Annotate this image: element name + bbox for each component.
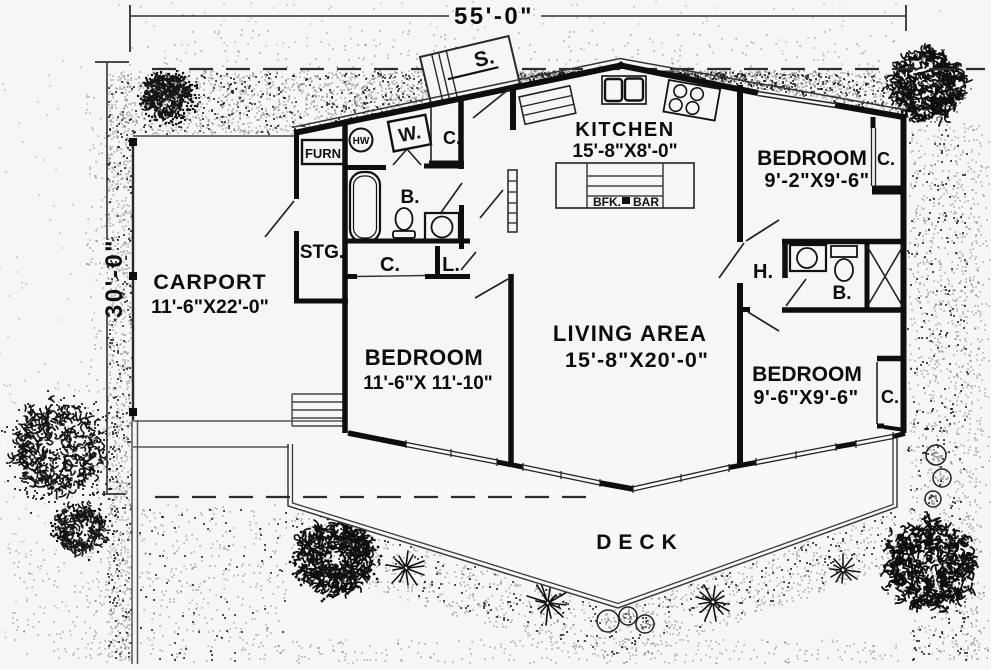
svg-text:KITCHEN: KITCHEN	[575, 119, 674, 141]
svg-text:15'-8"X20'-0": 15'-8"X20'-0"	[565, 348, 709, 372]
svg-text:B.: B.	[833, 283, 852, 304]
svg-text:B.: B.	[401, 187, 420, 208]
svg-text:CARPORT: CARPORT	[153, 270, 266, 294]
svg-text:30'-0": 30'-0"	[101, 238, 128, 318]
svg-text:HW: HW	[353, 136, 370, 147]
svg-text:BEDROOM: BEDROOM	[757, 147, 867, 170]
svg-text:C.: C.	[877, 149, 895, 169]
svg-text:LIVING AREA: LIVING AREA	[553, 321, 707, 346]
svg-text:W.: W.	[397, 122, 423, 147]
svg-text:STG.: STG.	[300, 242, 344, 263]
svg-text:DECK: DECK	[596, 531, 684, 554]
svg-text:55'-0": 55'-0"	[454, 3, 534, 30]
svg-text:11'-6"X22'-0": 11'-6"X22'-0"	[151, 296, 269, 318]
svg-text:9'-2"X9'-6": 9'-2"X9'-6"	[764, 170, 869, 192]
svg-text:FURN: FURN	[305, 146, 341, 161]
svg-text:11'-6"X 11'-10": 11'-6"X 11'-10"	[363, 373, 493, 394]
svg-text:C.: C.	[380, 254, 400, 276]
svg-text:C.: C.	[881, 387, 899, 407]
svg-text:L.: L.	[442, 254, 460, 276]
svg-text:BFK.: BFK.	[593, 195, 621, 209]
svg-text:BEDROOM: BEDROOM	[365, 345, 483, 370]
svg-text:9'-6"X9'-6": 9'-6"X9'-6"	[753, 387, 858, 409]
svg-text:C.: C.	[443, 128, 461, 148]
svg-text:H.: H.	[753, 261, 773, 283]
svg-text:BAR: BAR	[633, 195, 659, 209]
svg-text:15'-8"X8'-0": 15'-8"X8'-0"	[572, 141, 677, 162]
svg-text:BEDROOM: BEDROOM	[752, 363, 862, 386]
